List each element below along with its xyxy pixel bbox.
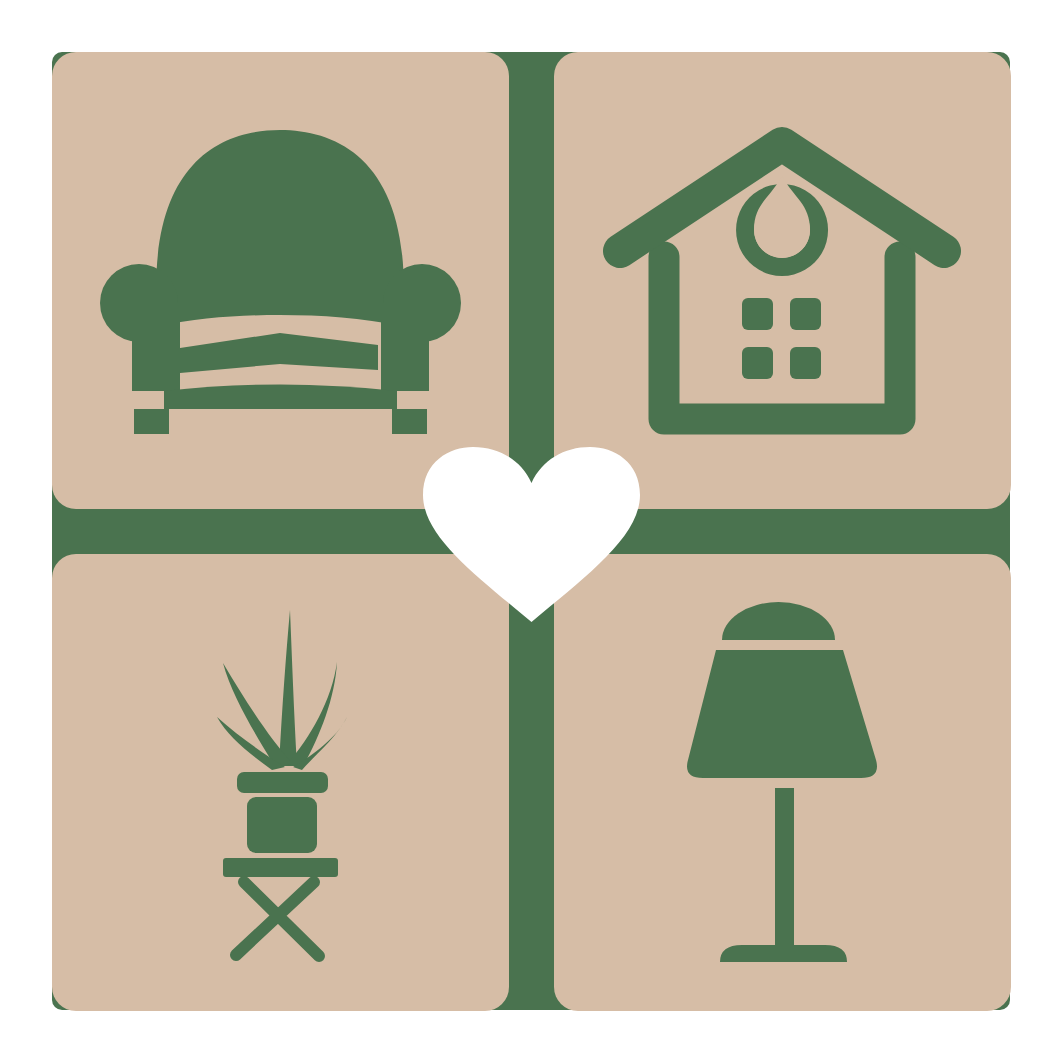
house-window-pane [790,347,821,379]
armchair-back [156,130,404,326]
plant-pot-rim [237,772,328,793]
lamp-base [720,945,847,962]
heart-icon [423,447,640,622]
armchair-seat [180,333,378,373]
house-teardrop-cutout [754,176,810,258]
armchair-right-post [381,303,429,391]
tile-top-right [554,52,1011,509]
armchair-left-leg [134,409,169,434]
tile-bottom-left [52,554,509,1011]
armchair-icon [52,52,509,509]
stool-crossed-legs [236,882,319,956]
armchair-rail [164,385,397,410]
tile-bottom-right [554,554,1011,1011]
armchair-right-leg [392,409,427,434]
house-icon [554,52,1011,509]
plant-leaf-center [279,610,297,766]
lamp-shade [687,650,877,778]
lamp-stem [775,788,794,945]
lamp-cap [722,602,835,640]
plant-pot-body [247,797,317,853]
tile-top-left [52,52,509,509]
house-walls [664,257,900,419]
house-window-pane [742,298,773,330]
logo-canvas [0,0,1063,1063]
armchair-left-post [132,303,180,391]
house-window-pane [790,298,821,330]
heart-shape [423,447,640,622]
potted-plant-icon [52,554,509,1011]
house-window-pane [742,347,773,379]
table-lamp-icon [554,554,1011,1011]
stool-top [223,858,338,877]
